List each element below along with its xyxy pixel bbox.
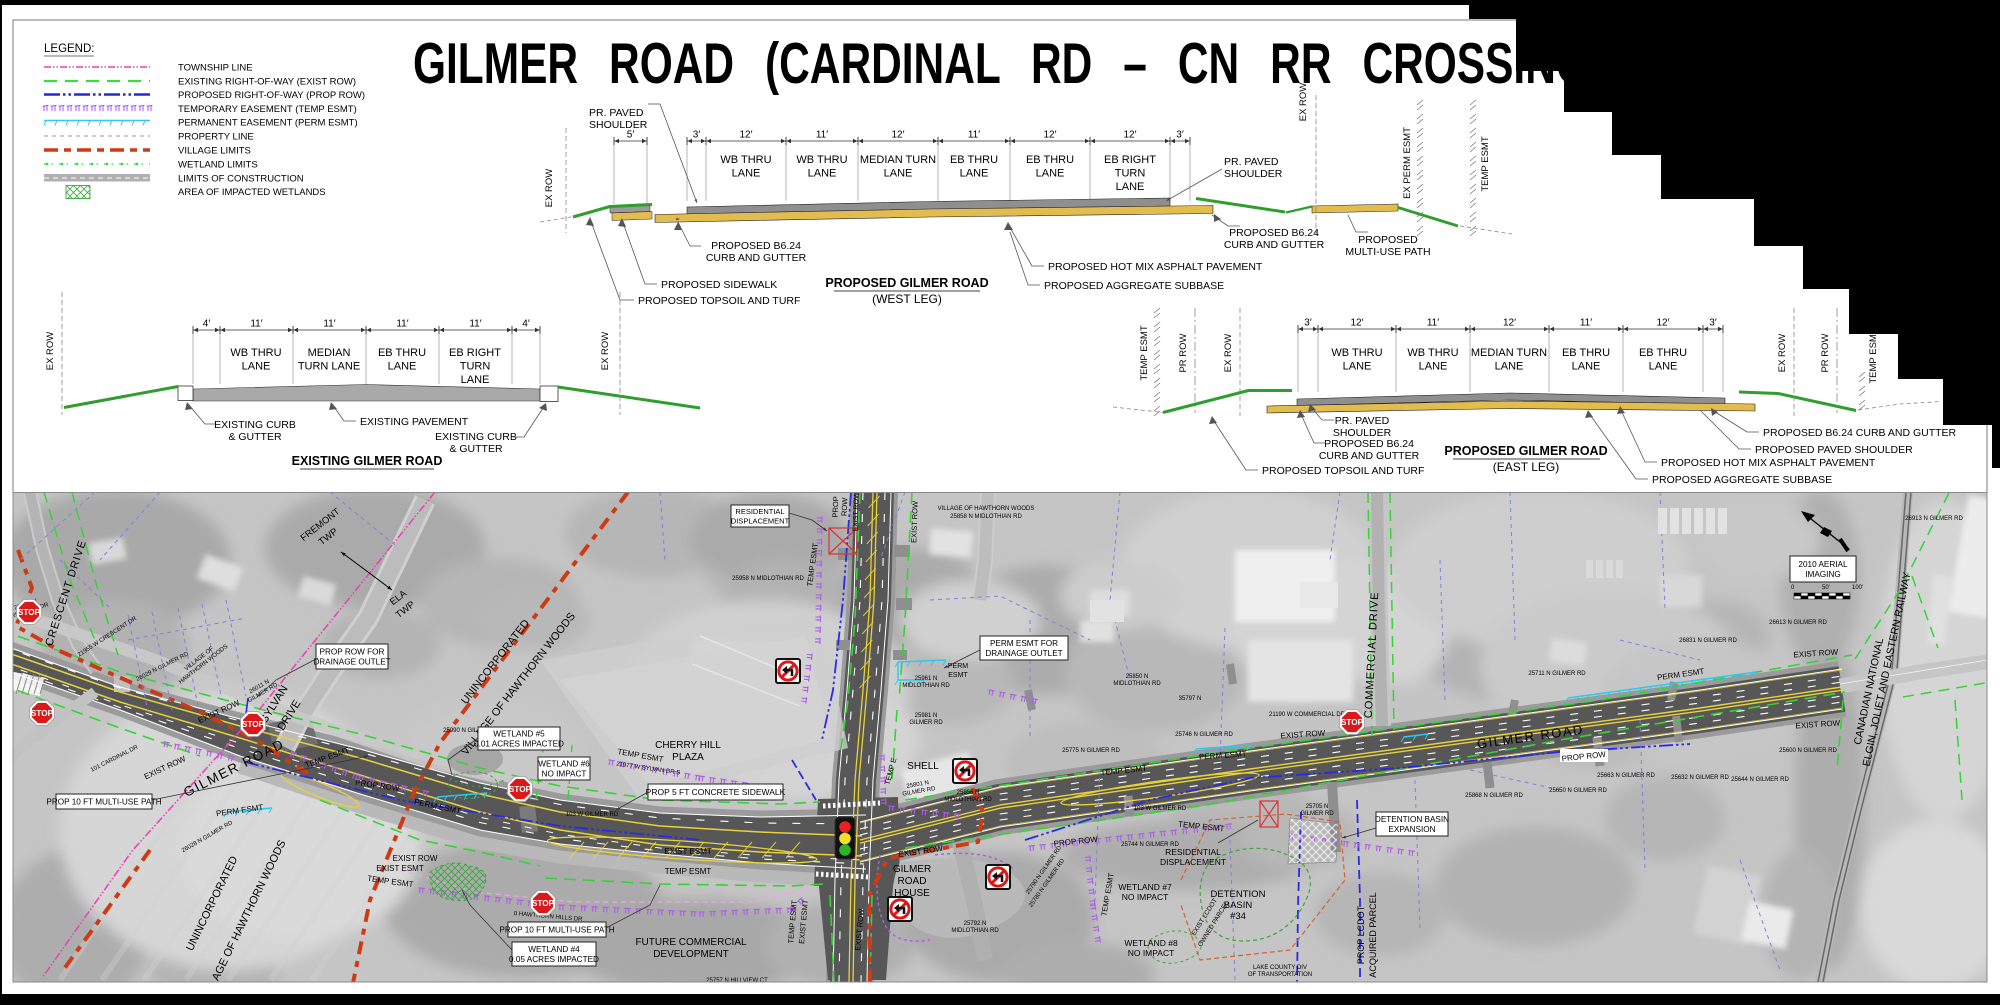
svg-text:PROP ROW FOR: PROP ROW FOR (320, 647, 385, 656)
svg-text:2010 AERIAL: 2010 AERIAL (1798, 560, 1848, 569)
svg-text:DETENTION: DETENTION (1211, 889, 1266, 900)
svg-text:WB THRU: WB THRU (796, 154, 847, 166)
svg-text:PROPERTY LINE: PROPERTY LINE (178, 132, 254, 143)
svg-text:MEDIAN TURN: MEDIAN TURN (1471, 347, 1547, 359)
svg-text:MIDLOTHIAN RD: MIDLOTHIAN RD (902, 683, 950, 689)
svg-text:AREA OF IMPACTED WETLANDS: AREA OF IMPACTED WETLANDS (178, 187, 326, 198)
svg-text:GILMER RD: GILMER RD (909, 720, 943, 726)
svg-text:(WEST LEG): (WEST LEG) (872, 292, 942, 306)
svg-text:LAKE COUNTY DIV: LAKE COUNTY DIV (1253, 965, 1307, 971)
svg-text:EB THRU: EB THRU (1639, 347, 1687, 359)
svg-text:LANE: LANE (1572, 361, 1601, 373)
svg-text:12′: 12′ (892, 130, 905, 141)
svg-text:PR. PAVED: PR. PAVED (1224, 156, 1279, 168)
svg-text:100': 100' (1852, 585, 1863, 591)
svg-text:VILLAGE OF HAWTHORN WOODS: VILLAGE OF HAWTHORN WOODS (938, 506, 1035, 512)
svg-text:PROPOSED GILMER ROAD: PROPOSED GILMER ROAD (825, 276, 988, 290)
svg-text:12′: 12′ (1044, 130, 1057, 141)
svg-text:WB THRU: WB THRU (230, 347, 281, 359)
svg-text:CURB AND GUTTER: CURB AND GUTTER (1224, 239, 1325, 251)
svg-text:LANE: LANE (1419, 361, 1448, 373)
svg-text:0.05 ACRES IMPACTED: 0.05 ACRES IMPACTED (509, 955, 599, 964)
svg-text:CURB AND GUTTER: CURB AND GUTTER (706, 252, 807, 264)
svg-text:CHERRY HILL: CHERRY HILL (655, 740, 721, 751)
svg-text:TEMP ESMT: TEMP ESMT (1868, 328, 1879, 383)
svg-text:EX ROW: EX ROW (1298, 83, 1309, 122)
svg-text:DISPLACEMENT: DISPLACEMENT (1160, 857, 1226, 867)
svg-text:5′: 5′ (627, 130, 635, 141)
svg-text:STOP: STOP (18, 608, 41, 617)
svg-text:11′: 11′ (816, 130, 828, 141)
svg-text:PROPOSED HOT MIX ASPHALT PAVEM: PROPOSED HOT MIX ASPHALT PAVEMENT (1048, 261, 1263, 273)
svg-text:EXISTING GILMER ROAD: EXISTING GILMER ROAD (292, 454, 443, 468)
svg-text:21190 W COMMERCIAL DR: 21190 W COMMERCIAL DR (1269, 712, 1346, 718)
svg-text:EX ROW: EX ROW (600, 332, 611, 371)
svg-text:SHELL: SHELL (907, 761, 939, 772)
svg-text:LANE: LANE (1343, 361, 1372, 373)
svg-text:PR ROW: PR ROW (1178, 333, 1189, 372)
svg-text:103 W GILMER RD: 103 W GILMER RD (1134, 806, 1187, 812)
svg-text:PERMANENT EASEMENT (PERM ESMT): PERMANENT EASEMENT (PERM ESMT) (178, 118, 358, 129)
svg-text:TURN: TURN (460, 361, 491, 373)
svg-text:GILMER: GILMER (893, 864, 931, 875)
svg-text:25792 N: 25792 N (964, 921, 987, 927)
svg-text:PROPOSED B6.24 CURB AND GUTTER: PROPOSED B6.24 CURB AND GUTTER (1763, 427, 1957, 439)
svg-text:SHOULDER: SHOULDER (589, 119, 648, 131)
svg-text:LANE: LANE (461, 374, 490, 386)
svg-text:PROPOSED RIGHT-OF-WAY (PROP RO: PROPOSED RIGHT-OF-WAY (PROP ROW) (178, 90, 365, 101)
svg-text:25858 N MIDLOTHIAN RD: 25858 N MIDLOTHIAN RD (950, 514, 1022, 520)
svg-text:0.01 ACRES IMPACTED: 0.01 ACRES IMPACTED (474, 740, 564, 749)
svg-text:PROPOSED SIDEWALK: PROPOSED SIDEWALK (661, 279, 777, 291)
svg-text:LANE: LANE (1649, 361, 1678, 373)
svg-text:EX ROW: EX ROW (45, 332, 56, 371)
svg-text:GILMER RD: GILMER RD (1300, 811, 1334, 817)
svg-text:MIDLOTHIAN RD: MIDLOTHIAN RD (951, 928, 999, 934)
svg-text:MEDIAN: MEDIAN (308, 347, 351, 359)
svg-text:25663 N GILMER RD: 25663 N GILMER RD (1597, 773, 1655, 779)
svg-text:50': 50' (1822, 585, 1830, 591)
svg-text:#34: #34 (1230, 911, 1246, 922)
svg-text:TEMP ESMT: TEMP ESMT (1139, 325, 1150, 380)
svg-text:EXIST ESMT: EXIST ESMT (376, 864, 424, 873)
svg-text:11′: 11′ (1580, 318, 1592, 329)
svg-text:ROW: ROW (840, 497, 850, 517)
svg-text:NO IMPACT: NO IMPACT (542, 770, 587, 779)
svg-text:3′: 3′ (1176, 130, 1184, 141)
svg-text:EB RIGHT: EB RIGHT (449, 347, 501, 359)
svg-text:3′: 3′ (693, 130, 701, 141)
svg-text:OF TRANSPORTATION: OF TRANSPORTATION (1248, 972, 1312, 978)
svg-text:EXISTING CURB: EXISTING CURB (214, 419, 296, 431)
svg-text:WETLAND #5: WETLAND #5 (493, 729, 545, 738)
svg-text:& GUTTER: & GUTTER (449, 443, 503, 455)
svg-text:25746 N GILMER RD: 25746 N GILMER RD (1175, 732, 1233, 738)
svg-text:11′: 11′ (968, 130, 980, 141)
svg-text:11′: 11′ (1427, 318, 1439, 329)
svg-text:STOP: STOP (532, 899, 555, 908)
svg-text:TEMP ESMT: TEMP ESMT (665, 867, 712, 876)
svg-text:LANE: LANE (1495, 361, 1524, 373)
svg-text:25711 N GILMER RD: 25711 N GILMER RD (1528, 671, 1586, 677)
svg-text:26913 N GILMER RD: 26913 N GILMER RD (1905, 516, 1963, 522)
svg-text:EX ROW: EX ROW (544, 169, 555, 208)
svg-text:4′: 4′ (203, 319, 211, 330)
svg-text:WB THRU: WB THRU (720, 154, 771, 166)
svg-text:12′: 12′ (1503, 318, 1516, 329)
svg-text:LANE: LANE (1036, 168, 1065, 180)
svg-text:PROPOSED: PROPOSED (1358, 234, 1418, 246)
svg-text:TEMP ESMT: TEMP ESMT (1480, 136, 1491, 191)
svg-text:LANE: LANE (884, 168, 913, 180)
svg-text:ESMT: ESMT (948, 672, 968, 679)
svg-text:STOP: STOP (242, 720, 265, 729)
svg-text:NO IMPACT: NO IMPACT (1128, 948, 1175, 958)
svg-text:STOP: STOP (31, 709, 54, 718)
svg-text:NO IMPACT: NO IMPACT (1122, 892, 1169, 902)
svg-text:PROPOSED TOPSOIL AND TURF: PROPOSED TOPSOIL AND TURF (1262, 465, 1424, 477)
svg-text:PROP LCDOT: PROP LCDOT (1356, 905, 1366, 964)
svg-text:LANE: LANE (242, 361, 271, 373)
svg-text:25600 N GILMER RD: 25600 N GILMER RD (1779, 748, 1837, 754)
svg-text:DISPLACEMENT: DISPLACEMENT (731, 516, 790, 525)
svg-text:WETLAND #6: WETLAND #6 (538, 759, 590, 768)
svg-text:DRAINAGE OUTLET: DRAINAGE OUTLET (985, 649, 1062, 658)
svg-text:35797 N: 35797 N (1179, 696, 1202, 702)
svg-text:MEDIAN TURN: MEDIAN TURN (860, 154, 936, 166)
svg-text:MIDLOTHIAN RD: MIDLOTHIAN RD (1113, 681, 1161, 687)
svg-text:PROPOSED AGGREGATE SUBBASE: PROPOSED AGGREGATE SUBBASE (1044, 280, 1224, 292)
svg-text:25856 N: 25856 N (957, 790, 980, 796)
svg-text:ACQUIRED PARCEL: ACQUIRED PARCEL (1368, 892, 1378, 977)
svg-text:LANE: LANE (960, 168, 989, 180)
svg-text:PERM: PERM (948, 663, 968, 670)
svg-text:TEMPORARY EASEMENT (TEMP ESMT): TEMPORARY EASEMENT (TEMP ESMT) (178, 104, 357, 115)
svg-text:EXISTING PAVEMENT: EXISTING PAVEMENT (360, 416, 469, 428)
svg-text:3′: 3′ (1709, 318, 1717, 329)
svg-text:STOP: STOP (1341, 718, 1364, 727)
svg-text:PROPOSED PAVED SHOULDER: PROPOSED PAVED SHOULDER (1755, 444, 1913, 456)
svg-text:EB RIGHT: EB RIGHT (1104, 154, 1156, 166)
svg-text:PROPOSED B6.24: PROPOSED B6.24 (1324, 438, 1414, 450)
svg-text:12′: 12′ (740, 130, 753, 141)
svg-text:PROP 5 FT CONCRETE SIDEWALK: PROP 5 FT CONCRETE SIDEWALK (646, 787, 786, 797)
svg-text:25868 N GILMER RD: 25868 N GILMER RD (1465, 793, 1523, 799)
svg-text:25981 N: 25981 N (915, 713, 938, 719)
svg-text:EX PERM ESMT: EX PERM ESMT (1402, 127, 1413, 199)
svg-text:25850 N: 25850 N (1126, 674, 1149, 680)
svg-text:26831 N GILMER RD: 26831 N GILMER RD (1679, 638, 1737, 644)
svg-text:LANE: LANE (732, 168, 761, 180)
svg-text:EXIST ESMT: EXIST ESMT (664, 847, 712, 856)
svg-text:LEGEND:: LEGEND: (44, 43, 95, 55)
svg-text:PROP 10 FT MULTI-USE PATH: PROP 10 FT MULTI-USE PATH (46, 797, 161, 806)
svg-text:PROPOSED AGGREGATE SUBBASE: PROPOSED AGGREGATE SUBBASE (1652, 474, 1832, 486)
svg-text:SHOULDER: SHOULDER (1224, 168, 1283, 180)
svg-text:EXPANSION: EXPANSION (1388, 825, 1435, 834)
svg-text:(EAST LEG): (EAST LEG) (1493, 460, 1559, 474)
svg-text:12′: 12′ (1351, 318, 1364, 329)
svg-text:RESIDENTIAL: RESIDENTIAL (735, 507, 784, 516)
svg-text:EX ROW: EX ROW (1777, 334, 1788, 373)
svg-text:EX ROW: EX ROW (1223, 334, 1234, 373)
svg-text:TURN: TURN (1115, 168, 1146, 180)
svg-text:PR. PAVED: PR. PAVED (589, 107, 644, 119)
svg-text:EXIST ROW: EXIST ROW (393, 854, 438, 863)
svg-text:ROAD: ROAD (898, 876, 927, 887)
svg-text:4′: 4′ (522, 319, 530, 330)
svg-text:11′: 11′ (396, 319, 408, 330)
svg-text:25958 N MIDLOTHIAN RD: 25958 N MIDLOTHIAN RD (732, 576, 804, 582)
svg-text:PROPOSED B6.24: PROPOSED B6.24 (1229, 227, 1319, 239)
svg-text:LANE: LANE (1116, 181, 1145, 193)
svg-text:DEVELOPMENT: DEVELOPMENT (653, 949, 729, 960)
svg-text:WETLAND #7: WETLAND #7 (1118, 882, 1172, 892)
svg-text:EB THRU: EB THRU (1562, 347, 1610, 359)
svg-text:EB THRU: EB THRU (1026, 154, 1074, 166)
svg-text:DETENTION BASIN: DETENTION BASIN (1375, 815, 1449, 824)
svg-text:TOWNSHIP LINE: TOWNSHIP LINE (178, 63, 253, 74)
svg-text:EXIST ROW: EXIST ROW (909, 500, 919, 543)
svg-text:LANE: LANE (808, 168, 837, 180)
svg-text:PR. PAVED: PR. PAVED (1335, 415, 1390, 427)
svg-text:WB THRU: WB THRU (1407, 347, 1458, 359)
svg-text:EB THRU: EB THRU (950, 154, 998, 166)
svg-text:EB THRU: EB THRU (378, 347, 426, 359)
svg-text:LANE: LANE (388, 361, 417, 373)
svg-text:& GUTTER: & GUTTER (228, 431, 282, 443)
svg-text:25632 N GILMER RD: 25632 N GILMER RD (1671, 775, 1729, 781)
svg-text:12′: 12′ (1124, 130, 1137, 141)
svg-text:GILMER ROAD (CARDINAL RD – CN: GILMER ROAD (CARDINAL RD – CN RR CROSSIN… (413, 32, 1603, 96)
svg-text:PROPOSED GILMER ROAD: PROPOSED GILMER ROAD (1444, 444, 1607, 458)
svg-text:STOP: STOP (509, 785, 532, 794)
svg-text:11′: 11′ (469, 319, 481, 330)
svg-text:3′: 3′ (1304, 318, 1312, 329)
svg-text:PLAZA: PLAZA (672, 752, 704, 763)
svg-text:25775 N GILMER RD: 25775 N GILMER RD (1062, 748, 1120, 754)
svg-text:PR ROW: PR ROW (1820, 333, 1831, 372)
svg-text:MIDLOTHIAN RD: MIDLOTHIAN RD (944, 797, 992, 803)
svg-text:WETLAND #8: WETLAND #8 (1124, 938, 1178, 948)
svg-text:LIMITS OF CONSTRUCTION: LIMITS OF CONSTRUCTION (178, 174, 304, 185)
svg-text:EXIST ROW: EXIST ROW (852, 492, 860, 532)
svg-text:TURN LANE: TURN LANE (298, 361, 360, 373)
svg-text:PERM ESMT FOR: PERM ESMT FOR (990, 639, 1058, 648)
svg-text:WB THRU: WB THRU (1331, 347, 1382, 359)
svg-text:WETLAND #4: WETLAND #4 (528, 945, 580, 954)
svg-text:25961 N: 25961 N (915, 676, 938, 682)
svg-text:PROPOSED B6.24: PROPOSED B6.24 (711, 240, 801, 252)
svg-text:PROP 10 FT MULTI-USE PATH: PROP 10 FT MULTI-USE PATH (499, 925, 614, 934)
svg-text:11′: 11′ (250, 319, 262, 330)
svg-text:103 W GILMER RD: 103 W GILMER RD (566, 812, 619, 818)
svg-text:VILLAGE LIMITS: VILLAGE LIMITS (178, 146, 251, 157)
svg-text:11′: 11′ (323, 319, 335, 330)
svg-text:26613 N GILMER RD: 26613 N GILMER RD (1769, 620, 1827, 626)
svg-text:PROPOSED HOT MIX ASPHALT PAVEM: PROPOSED HOT MIX ASPHALT PAVEMENT (1661, 457, 1876, 469)
svg-text:25650 N GILMER RD: 25650 N GILMER RD (1549, 788, 1607, 794)
svg-text:RESIDENTIAL: RESIDENTIAL (1165, 847, 1221, 857)
svg-text:25644 N GILMER RD: 25644 N GILMER RD (1731, 777, 1789, 783)
svg-text:MULTI-USE PATH: MULTI-USE PATH (1345, 246, 1430, 258)
svg-text:12′: 12′ (1657, 318, 1670, 329)
svg-text:FUTURE COMMERCIAL: FUTURE COMMERCIAL (635, 937, 747, 948)
svg-text:IMAGING: IMAGING (1805, 570, 1840, 579)
svg-text:25705 N: 25705 N (1306, 804, 1329, 810)
svg-text:EXISTING CURB: EXISTING CURB (435, 431, 517, 443)
svg-text:PROPOSED TOPSOIL AND TURF: PROPOSED TOPSOIL AND TURF (638, 295, 800, 307)
svg-text:CURB AND GUTTER: CURB AND GUTTER (1319, 450, 1420, 462)
svg-text:DRAINAGE OUTLET: DRAINAGE OUTLET (313, 658, 390, 667)
svg-text:WETLAND LIMITS: WETLAND LIMITS (178, 160, 258, 171)
svg-text:EXISTING RIGHT-OF-WAY (EXIST R: EXISTING RIGHT-OF-WAY (EXIST ROW) (178, 77, 356, 88)
